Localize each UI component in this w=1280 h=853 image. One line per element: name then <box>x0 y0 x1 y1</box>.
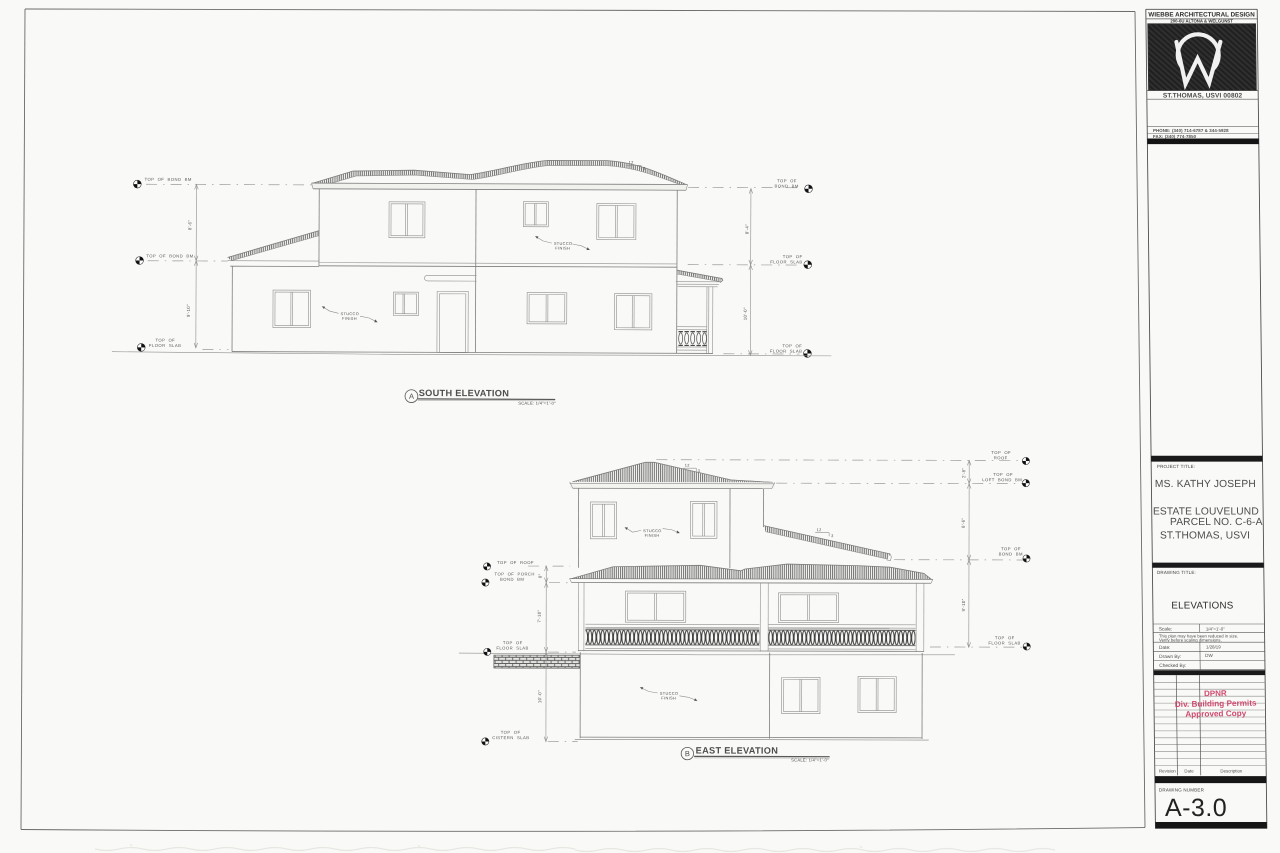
svg-text:TOP OF: TOP OF <box>155 338 175 343</box>
svg-text:PHONE: (340) 714-6787 & 344-59: PHONE: (340) 714-6787 & 344-5928 <box>1153 128 1229 133</box>
svg-text:TOP OF: TOP OF <box>782 343 802 348</box>
svg-text:FINISH: FINISH <box>342 316 357 321</box>
svg-text:Checked By:: Checked By: <box>1159 663 1186 669</box>
svg-text:TOP OF: TOP OF <box>995 635 1015 640</box>
svg-text:10'-0": 10'-0" <box>743 307 748 320</box>
svg-text:Date: Date <box>1184 769 1194 774</box>
svg-text:ESTATE LOUVELUND: ESTATE LOUVELUND <box>1153 507 1259 518</box>
svg-text:FAX: (340) 774-7850: FAX: (340) 774-7850 <box>1153 134 1197 139</box>
svg-text:1/4"=1'-0": 1/4"=1'-0" <box>1206 626 1225 631</box>
svg-text:DPNR: DPNR <box>1204 689 1227 698</box>
svg-text:FLOOR SLAB: FLOOR SLAB <box>770 259 802 264</box>
svg-text:FINISH: FINISH <box>645 533 660 538</box>
svg-text:Date:: Date: <box>1159 645 1171 651</box>
svg-text:PROJECT TITLE:: PROJECT TITLE: <box>1157 464 1195 469</box>
svg-text:PARCEL NO. C-6-A: PARCEL NO. C-6-A <box>1170 517 1263 528</box>
svg-text:TOP OF: TOP OF <box>783 254 803 259</box>
svg-text:B: B <box>685 749 690 758</box>
svg-text:TOP OF BOND BM: TOP OF BOND BM <box>145 177 192 182</box>
svg-text:200-6U ALTONA & WELGUNST: 200-6U ALTONA & WELGUNST <box>1170 19 1233 24</box>
svg-text:TOP OF ROOF: TOP OF ROOF <box>497 560 534 565</box>
svg-text:SCALE: 1/4"=1'-0": SCALE: 1/4"=1'-0" <box>518 401 556 406</box>
svg-text:Scale:: Scale: <box>1159 627 1172 633</box>
svg-text:3: 3 <box>643 166 646 171</box>
svg-text:TOP OF: TOP OF <box>993 472 1013 477</box>
svg-text:LOFT BOND BM: LOFT BOND BM <box>982 477 1022 482</box>
svg-text:DRAWING NUMBER: DRAWING NUMBER <box>1159 787 1205 792</box>
svg-text:12: 12 <box>685 463 690 468</box>
svg-text:9'-10": 9'-10" <box>961 598 966 611</box>
svg-text:TOP OF: TOP OF <box>991 450 1011 455</box>
svg-text:Description: Description <box>1220 769 1243 774</box>
svg-text:3: 3 <box>698 468 701 473</box>
svg-text:10'-0": 10'-0" <box>537 690 542 703</box>
svg-text:TOP OF: TOP OF <box>777 178 797 183</box>
svg-text:8": 8" <box>538 573 543 578</box>
svg-text:SCALE: 1/4"=1'-0": SCALE: 1/4"=1'-0" <box>791 757 829 762</box>
svg-text:SOUTH ELEVATION: SOUTH ELEVATION <box>419 388 510 398</box>
svg-text:TOP OF: TOP OF <box>503 640 523 645</box>
svg-text:TOP OF BOND BM: TOP OF BOND BM <box>146 253 193 258</box>
svg-text:3: 3 <box>831 533 834 538</box>
svg-text:BOND BM: BOND BM <box>500 577 524 582</box>
svg-text:ELEVATIONS: ELEVATIONS <box>1171 600 1233 611</box>
svg-text:ROOF: ROOF <box>994 455 1008 460</box>
svg-text:CISTERN SLAB: CISTERN SLAB <box>492 735 529 740</box>
svg-text:A: A <box>409 392 414 401</box>
svg-text:12: 12 <box>629 160 634 165</box>
svg-text:A-3.0: A-3.0 <box>1165 794 1228 822</box>
svg-text:8'-4": 8'-4" <box>744 224 749 234</box>
svg-text:8'-6": 8'-6" <box>961 518 966 528</box>
svg-text:FLOOR SLAB: FLOOR SLAB <box>149 343 181 348</box>
svg-text:WIEBBE ARCHITECTURAL DESIGN: WIEBBE ARCHITECTURAL DESIGN <box>1148 12 1255 19</box>
svg-text:Div. Building Permits: Div. Building Permits <box>1175 699 1257 709</box>
svg-text:DRAWING TITLE:: DRAWING TITLE: <box>1157 570 1196 575</box>
svg-text:EAST ELEVATION: EAST ELEVATION <box>696 745 779 755</box>
svg-text:TOP OF: TOP OF <box>1001 546 1021 551</box>
svg-text:FLOOR SLAB: FLOOR SLAB <box>770 349 802 354</box>
svg-text:12: 12 <box>817 527 822 532</box>
svg-text:8'-6": 8'-6" <box>187 220 192 230</box>
svg-text:Verify before scaling dimensio: Verify before scaling dimensions. <box>1159 638 1222 643</box>
svg-text:ST.THOMAS, USVI 00802: ST.THOMAS, USVI 00802 <box>1163 93 1243 100</box>
svg-text:2'-8": 2'-8" <box>961 468 966 478</box>
svg-text:BOND BM: BOND BM <box>999 552 1023 557</box>
svg-text:Approved Copy: Approved Copy <box>1185 709 1247 719</box>
svg-text:Drawn By:: Drawn By: <box>1159 654 1181 660</box>
svg-text:Revision: Revision <box>1159 769 1176 774</box>
svg-text:FINISH: FINISH <box>555 246 570 251</box>
svg-text:9'-10": 9'-10" <box>186 304 191 317</box>
svg-text:TOP OF: TOP OF <box>501 730 521 735</box>
svg-text:BOND BM: BOND BM <box>775 184 799 189</box>
svg-text:1/28/19: 1/28/19 <box>1206 644 1221 649</box>
svg-text:MS. KATHY JOSEPH: MS. KATHY JOSEPH <box>1155 479 1256 490</box>
svg-text:ST.THOMAS, USVI: ST.THOMAS, USVI <box>1160 531 1250 542</box>
svg-text:FLOOR SLAB: FLOOR SLAB <box>496 645 528 650</box>
svg-text:7'-10": 7'-10" <box>537 610 542 623</box>
svg-text:DW: DW <box>1205 653 1213 658</box>
svg-text:FLOOR SLAB: FLOOR SLAB <box>988 641 1020 646</box>
svg-text:FINISH: FINISH <box>661 695 676 700</box>
